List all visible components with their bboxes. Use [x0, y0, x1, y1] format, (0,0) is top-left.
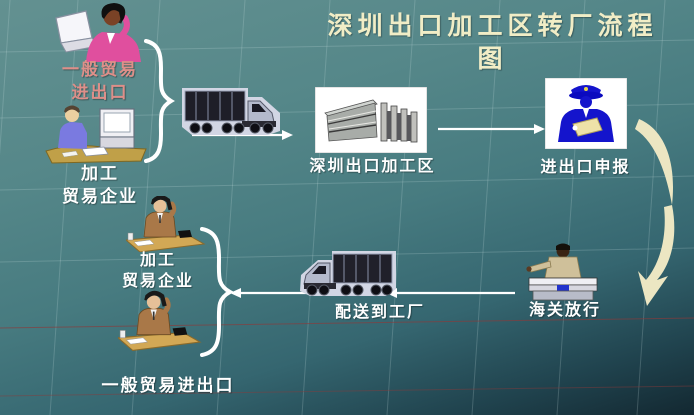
label-processing-bottom-line2: 贸易企业 — [112, 271, 204, 292]
label-declaration-text: 进出口申报 — [528, 157, 643, 178]
arrow-epz-to-declaration — [436, 122, 546, 136]
epz-building-icon — [315, 87, 427, 153]
label-customs-release: 海关放行 — [520, 300, 610, 321]
slide-title-line1: 深圳出口加工区转厂流程 — [295, 10, 690, 43]
slide-title-line2: 图 — [295, 43, 690, 76]
arrow-release-to-truck — [385, 286, 517, 300]
label-processing-bottom-line1: 加工 — [112, 250, 204, 271]
businesswoman-phone-laptop-icon — [52, 2, 142, 62]
truck-left-icon — [298, 247, 396, 299]
label-general-trade-bottom: 一般贸易进出口 — [88, 374, 248, 397]
slide-canvas: 深圳出口加工区转厂流程 图 一般贸易 进出口 加工 贸易企业 — [0, 0, 694, 415]
label-delivery-text: 配送到工厂 — [305, 302, 455, 323]
truck-right-icon — [182, 83, 282, 138]
factory-man-phone-icon-2 — [118, 290, 202, 352]
label-delivery: 配送到工厂 — [305, 302, 455, 323]
label-processing-top-line1: 加工 — [38, 162, 162, 185]
slide-title: 深圳出口加工区转厂流程 图 — [295, 10, 690, 76]
label-general-trade-top-line2: 进出口 — [38, 81, 162, 104]
label-epz: 深圳出口加工区 — [305, 156, 440, 177]
customs-officer-icon — [545, 78, 627, 149]
label-epz-text: 深圳出口加工区 — [305, 156, 440, 177]
officer-head — [580, 96, 592, 108]
label-general-trade-top: 一般贸易 进出口 — [38, 58, 162, 104]
curved-down-arrow-icon — [633, 115, 691, 310]
label-processing-enterprise-top: 加工 贸易企业 — [38, 162, 162, 208]
customs-release-officer-icon — [523, 242, 603, 302]
label-processing-top-line2: 贸易企业 — [38, 185, 162, 208]
label-general-trade-bottom-text: 一般贸易进出口 — [88, 374, 248, 397]
clerk-at-computer-icon — [42, 103, 152, 165]
swoosh-lower — [638, 205, 674, 306]
label-processing-enterprise-bottom: 加工 贸易企业 — [112, 250, 204, 292]
label-general-trade-top-line1: 一般贸易 — [38, 58, 162, 81]
label-declaration: 进出口申报 — [528, 157, 643, 178]
label-customs-release-text: 海关放行 — [520, 300, 610, 321]
